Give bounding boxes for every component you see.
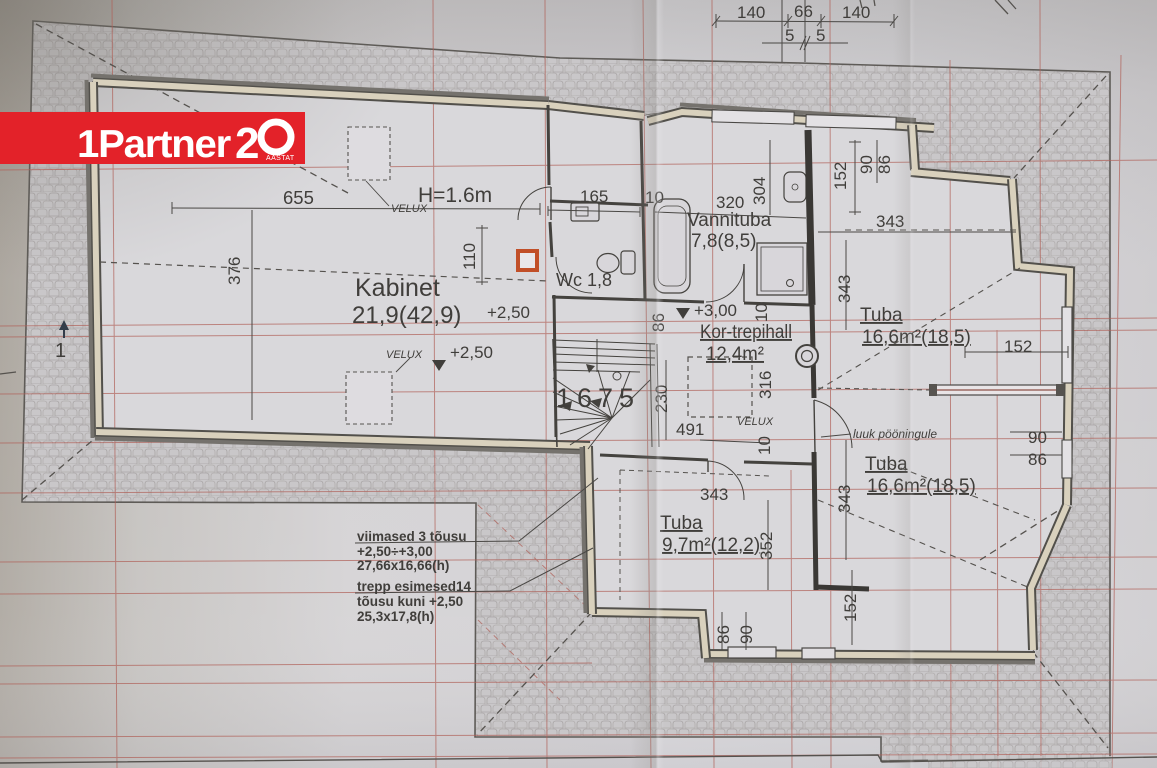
svg-text:H=1.6m: H=1.6m [418, 184, 492, 207]
svg-text:352: 352 [757, 532, 776, 560]
svg-text:152: 152 [831, 162, 850, 190]
svg-text:343: 343 [835, 485, 854, 513]
svg-text:90: 90 [1028, 428, 1047, 447]
svg-text:140: 140 [737, 3, 765, 22]
svg-text:16,6m²(18,5): 16,6m²(18,5) [862, 327, 971, 348]
svg-text:tõusu kuni +2,50: tõusu kuni +2,50 [357, 594, 463, 609]
svg-text:Kabinet: Kabinet [355, 274, 440, 302]
svg-text:trepp esimesed14: trepp esimesed14 [357, 579, 472, 594]
svg-text:304: 304 [750, 177, 769, 205]
svg-text:2: 2 [235, 119, 259, 168]
svg-text:86: 86 [1028, 450, 1047, 469]
svg-text:66: 66 [794, 2, 813, 21]
svg-text:VELUX: VELUX [391, 203, 428, 215]
svg-text:+2,50: +2,50 [450, 343, 493, 362]
svg-text:Vannituba: Vannituba [687, 210, 772, 231]
svg-text:Wc 1,8: Wc 1,8 [556, 270, 612, 290]
svg-text:16,6m²(18,5): 16,6m²(18,5) [867, 476, 976, 497]
svg-text:1: 1 [55, 340, 66, 362]
svg-text:viimased 3 tõusu: viimased 3 tõusu [357, 529, 467, 544]
svg-text:+2,50: +2,50 [487, 303, 530, 322]
svg-text:9,7m²(12,2): 9,7m²(12,2) [662, 535, 760, 556]
svg-text:152: 152 [1004, 337, 1032, 356]
svg-text:AASTAT: AASTAT [266, 155, 295, 162]
svg-text:376: 376 [225, 257, 244, 285]
svg-text:165: 165 [580, 187, 608, 206]
svg-text:10: 10 [755, 436, 774, 455]
svg-text:5: 5 [785, 26, 794, 45]
svg-text:25,3x17,8(h): 25,3x17,8(h) [357, 609, 434, 624]
svg-text:90: 90 [857, 155, 876, 174]
svg-text:21,9(42,9): 21,9(42,9) [352, 302, 461, 329]
svg-text:655: 655 [283, 187, 314, 208]
svg-text:5: 5 [816, 26, 825, 45]
svg-text:+2,50÷+3,00: +2,50÷+3,00 [357, 544, 433, 559]
svg-text:343: 343 [835, 275, 854, 303]
svg-text:343: 343 [700, 485, 728, 504]
svg-text:86: 86 [875, 155, 894, 174]
svg-text:152: 152 [841, 594, 860, 622]
svg-text:7,8(8,5): 7,8(8,5) [691, 231, 756, 252]
svg-text:10: 10 [752, 303, 771, 322]
svg-text:110: 110 [460, 243, 479, 270]
svg-text:316: 316 [756, 371, 775, 399]
svg-text:140: 140 [842, 3, 870, 22]
svg-text:1675: 1675 [556, 383, 640, 413]
svg-text:+3,00: +3,00 [694, 301, 737, 320]
svg-text:86: 86 [714, 625, 733, 644]
svg-text:27,66x16,66(h): 27,66x16,66(h) [357, 558, 449, 573]
svg-text:VELUX: VELUX [737, 416, 774, 428]
svg-text:90: 90 [737, 625, 756, 644]
svg-text:1Partner: 1Partner [77, 123, 231, 166]
svg-text:491: 491 [676, 420, 704, 439]
svg-text:Tuba: Tuba [660, 513, 703, 534]
svg-text:12,4m²: 12,4m² [706, 344, 764, 365]
svg-text:VELUX: VELUX [386, 349, 423, 361]
svg-text:Kor-trepihall: Kor-trepihall [700, 322, 792, 343]
